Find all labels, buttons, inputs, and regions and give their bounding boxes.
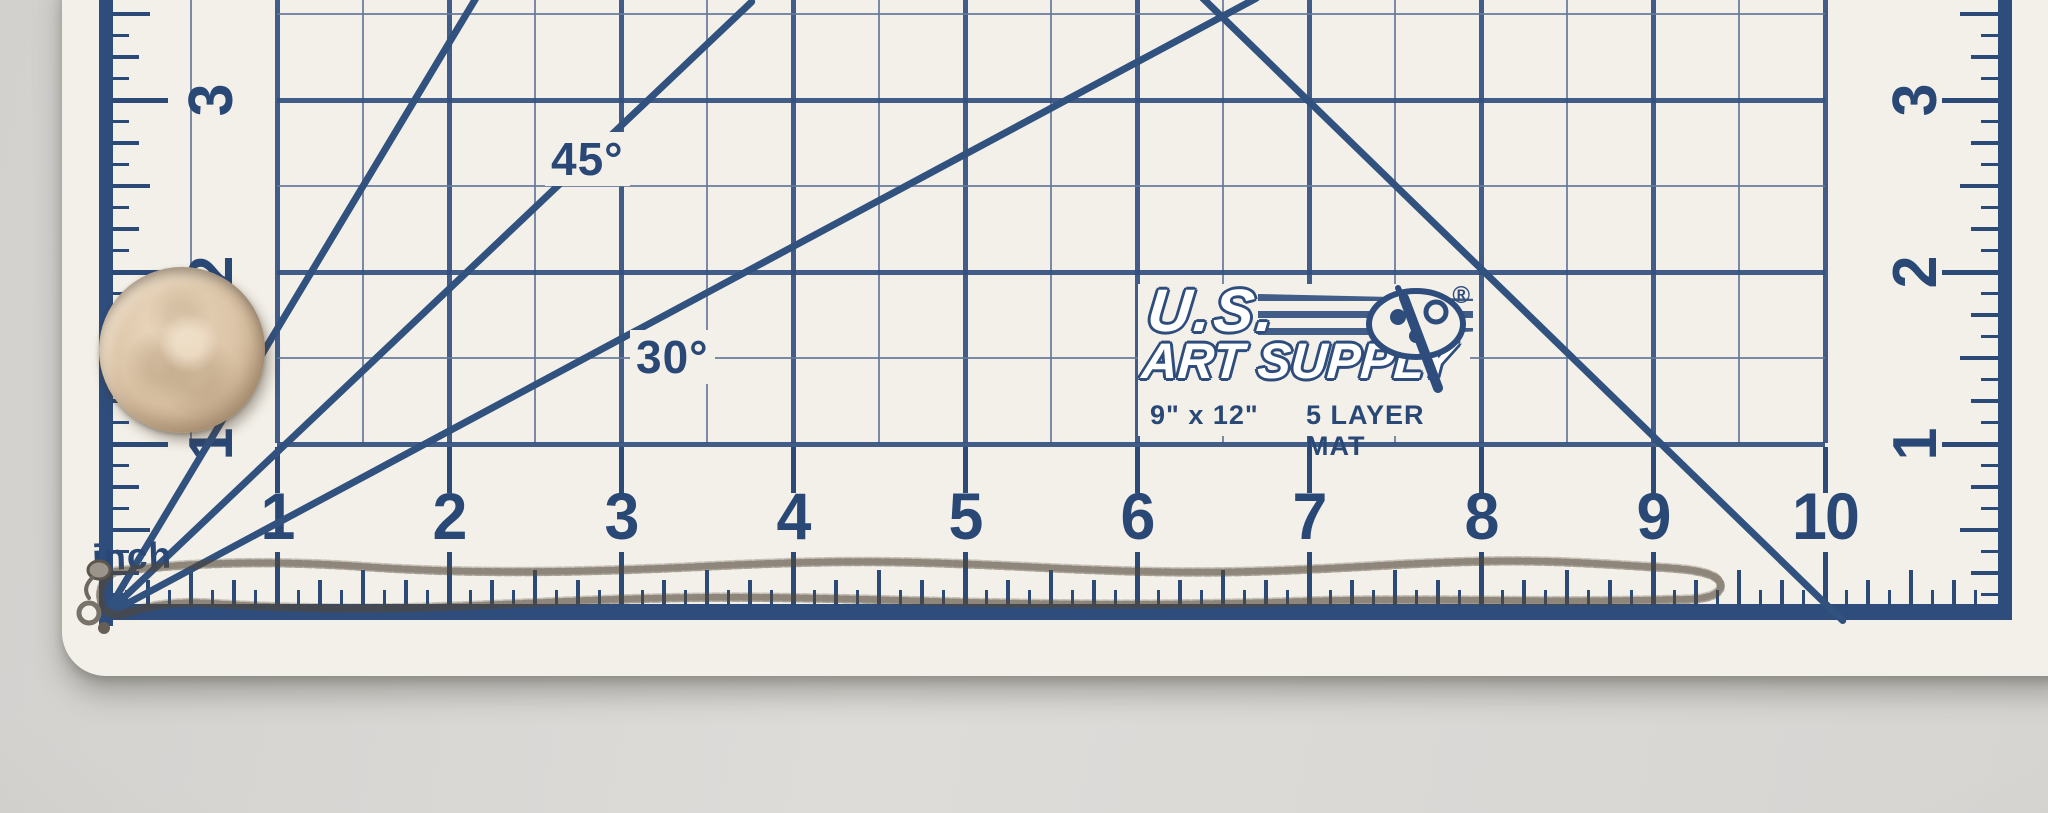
chain-necklace xyxy=(0,0,2048,813)
chain-loop xyxy=(79,560,1721,634)
chain-clasp xyxy=(79,561,110,634)
photo-scene: 12345678910123123 45° 30° inch U.S. ® AR… xyxy=(0,0,2048,813)
